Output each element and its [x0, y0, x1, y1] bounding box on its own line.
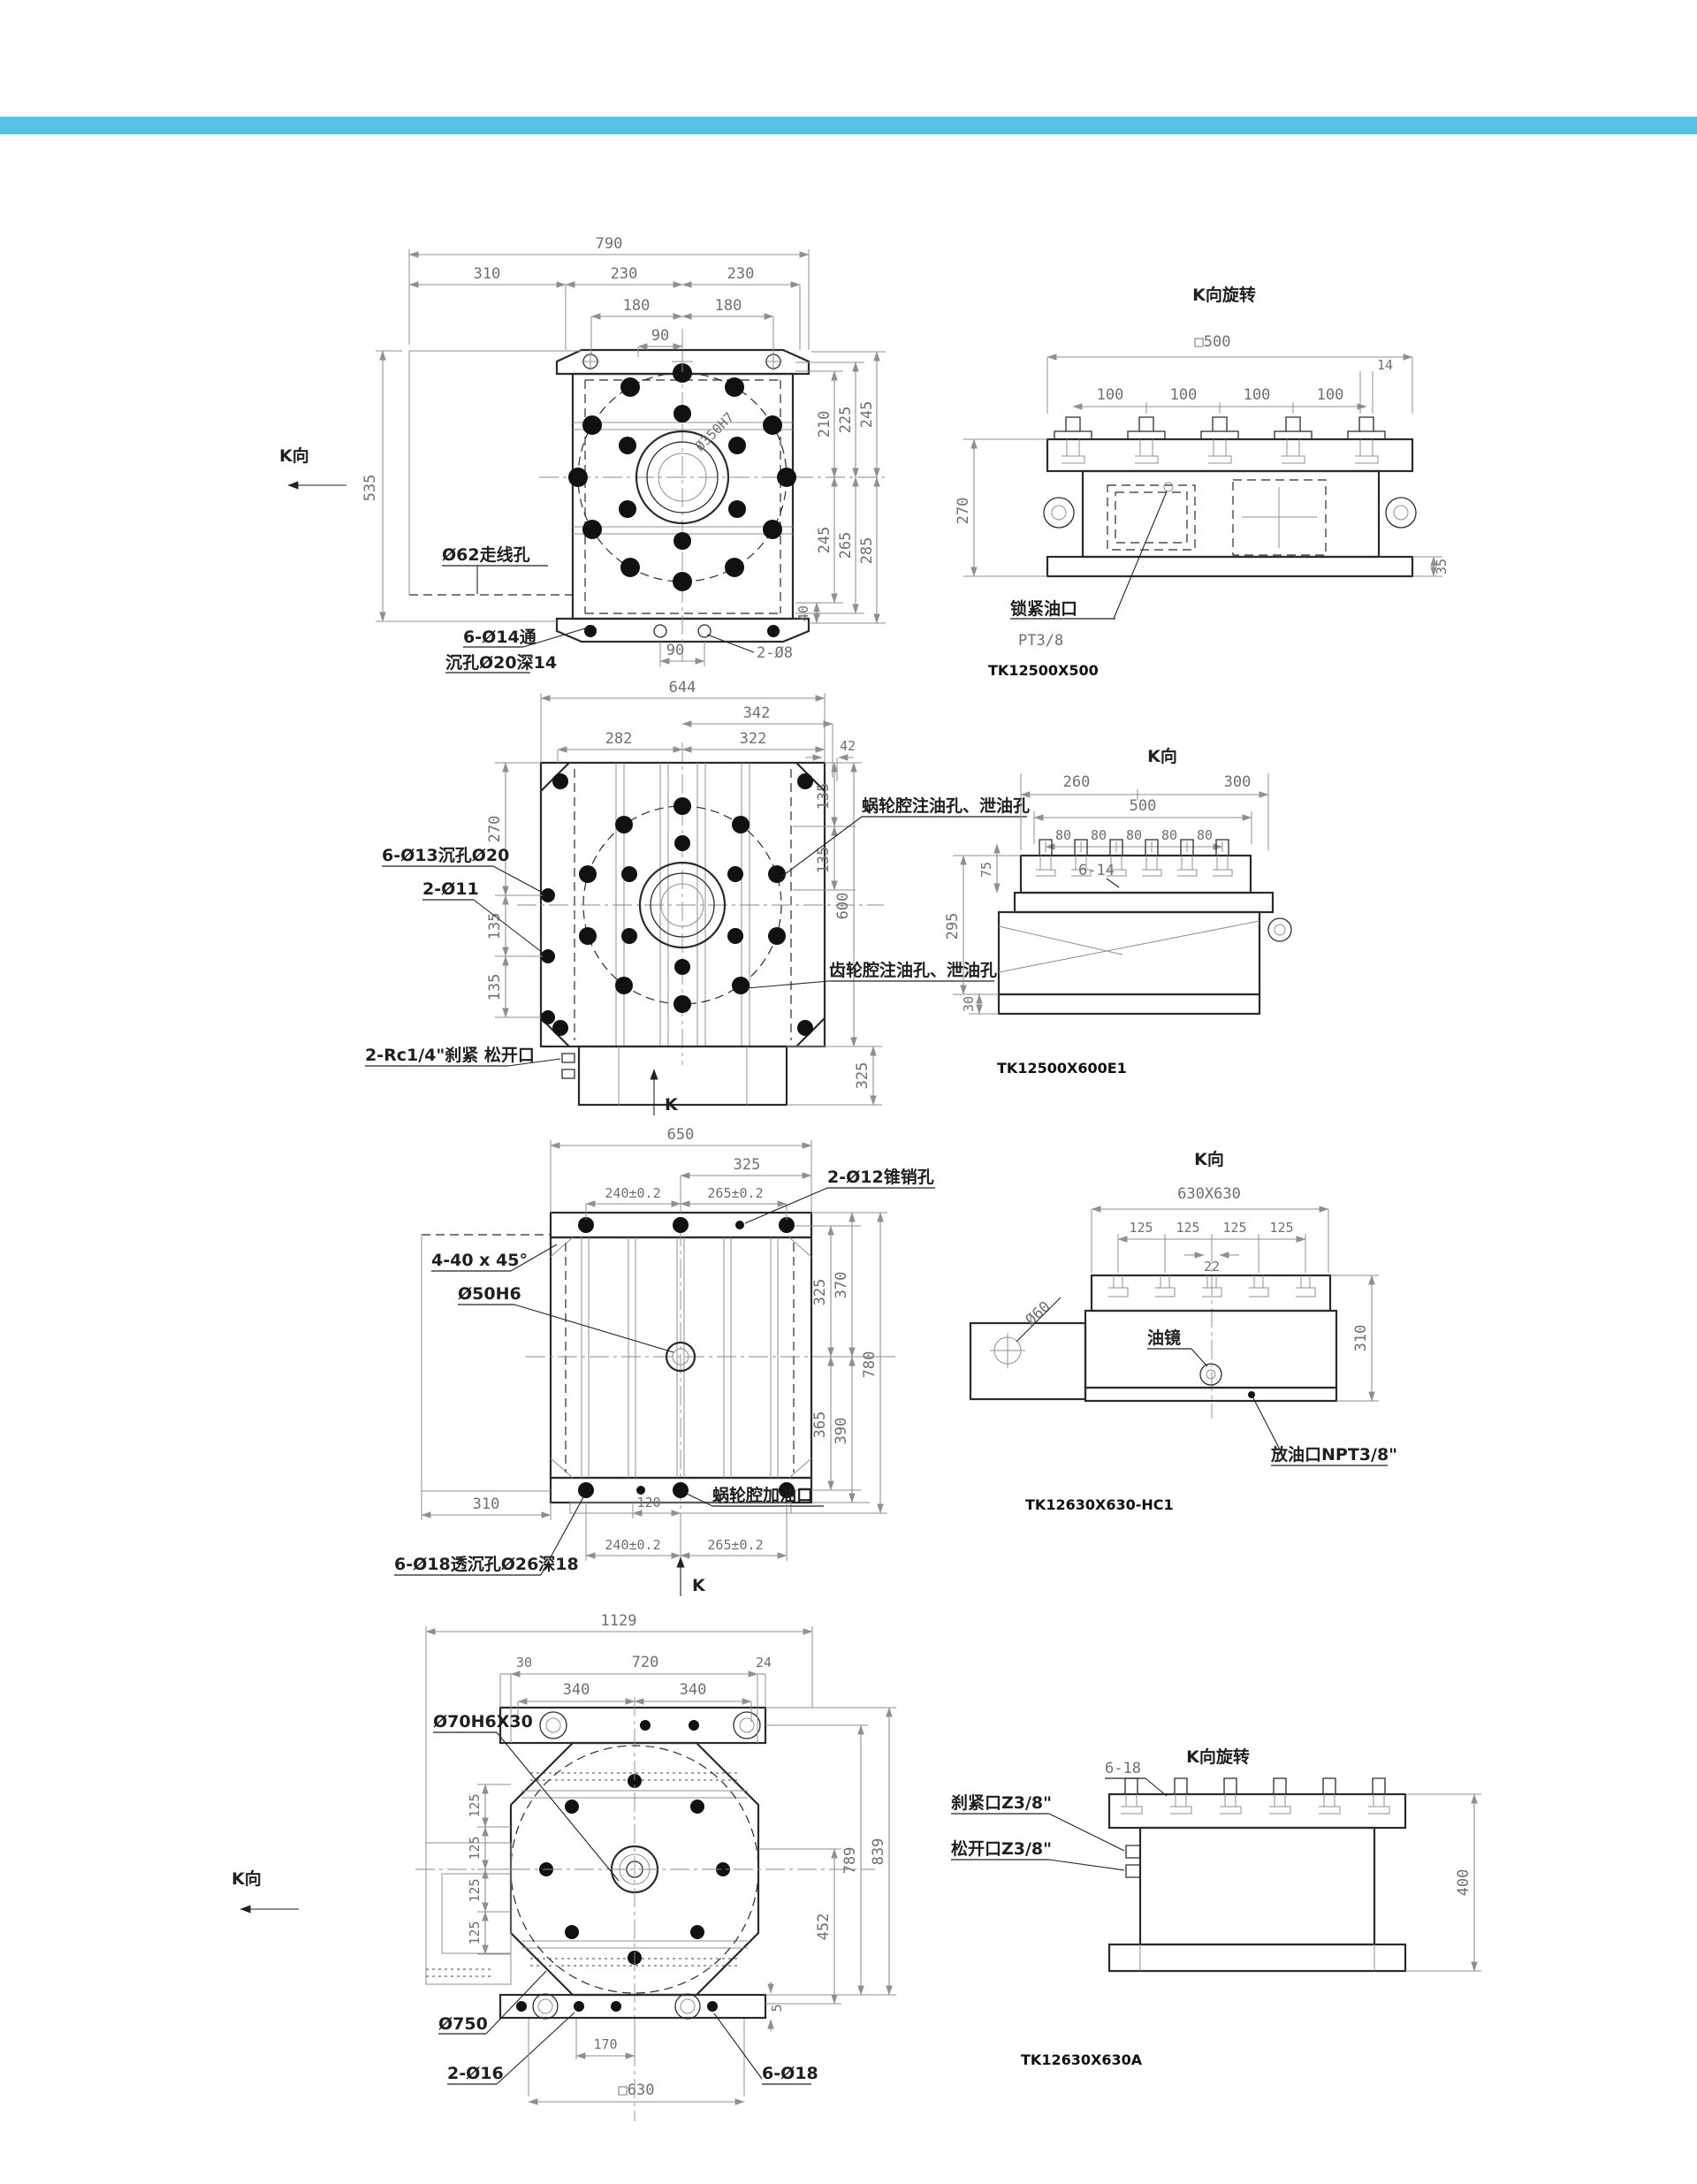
- g2-dim-75: 75: [978, 862, 994, 878]
- g1-label-lock-port: 锁紧油口: [1010, 598, 1077, 619]
- g2-dim-80-1: 80: [1055, 827, 1071, 843]
- g2-dim-135-l2: 135: [486, 974, 504, 1001]
- g3-dim-365: 365: [811, 1412, 829, 1439]
- g1-dim-310: 310: [474, 265, 501, 283]
- g3-label-shaft: Ø60: [1023, 1298, 1054, 1329]
- g1-dim-100-3: 100: [1244, 386, 1271, 404]
- g3-dim-125-3: 125: [1222, 1220, 1246, 1236]
- g1-dim-230l: 230: [611, 265, 638, 283]
- g2-dim-42: 42: [840, 738, 856, 754]
- g4-dim-720: 720: [632, 1654, 659, 1671]
- g4-label-release: 松开口Z3/8": [951, 1838, 1052, 1859]
- g3-label-bore: Ø50H6: [458, 1284, 521, 1304]
- g1-side: K向旋转 □500 100 100 100 100 14 锁紧油口 PT3/8 …: [955, 285, 1450, 679]
- g4-dim-125-2: 125: [467, 1836, 483, 1860]
- g1-part-no: TK12500X500: [988, 662, 1099, 679]
- g2-label-gear-ports: 齿轮腔注油孔、泄油孔: [829, 960, 997, 980]
- g2-dim-80-5: 80: [1197, 827, 1213, 843]
- g3-side-title: K向: [1194, 1149, 1224, 1169]
- g3-dim-125-1: 125: [1129, 1220, 1153, 1236]
- g3-dim-630x630: 630X630: [1177, 1185, 1241, 1203]
- g1-dim-245b: 245: [816, 527, 833, 554]
- g2-dim-260: 260: [1063, 773, 1091, 791]
- g1-dim-180r: 180: [715, 297, 742, 315]
- g3-dim-650: 650: [667, 1126, 695, 1144]
- g3-side: K向 630X630 125 125 125 125 22 Ø60 油镜 310…: [970, 1149, 1397, 1513]
- g1-label-lock-thread: PT3/8: [1018, 632, 1063, 650]
- g3-dim-310r: 310: [1352, 1325, 1370, 1352]
- g3-dim-325r: 325: [811, 1279, 829, 1306]
- g1-side-studs: [1054, 417, 1385, 439]
- g4-label-cbore: 6-Ø18: [762, 2064, 818, 2083]
- g1-dim-35: 35: [1434, 559, 1450, 575]
- g1-dim-790: 790: [596, 235, 623, 253]
- g2-label-worm-ports: 蜗轮腔注油孔、泄油孔: [862, 795, 1030, 816]
- g4-dim-1129: 1129: [601, 1612, 637, 1630]
- g3-part-no: TK12630X630-HC1: [1025, 1496, 1174, 1513]
- g4-label-slots: 6-18: [1105, 1760, 1141, 1777]
- drawing-canvas: Ø350H7 K向 790 310 230 230 180 180 90 535: [0, 0, 1697, 2184]
- g2-dim-322: 322: [740, 730, 767, 748]
- g1-label-cbore2: 沉孔Ø20深14: [445, 652, 557, 673]
- g2-dim-80-4: 80: [1161, 827, 1177, 843]
- g2-dim-282: 282: [605, 730, 633, 748]
- g4-dim-24: 24: [756, 1655, 772, 1670]
- g4-side-title: K向旋转: [1186, 1746, 1250, 1767]
- g1-dim-90bottom: 90: [666, 642, 684, 659]
- g1-side-title: K向旋转: [1192, 285, 1256, 305]
- g1-dim-230r: 230: [727, 265, 755, 283]
- g3-dim-125-2: 125: [1176, 1220, 1199, 1236]
- g2-dim-600: 600: [834, 893, 852, 920]
- g1-label-pins: 2-Ø8: [757, 644, 793, 662]
- g1-dim-210: 210: [816, 411, 833, 438]
- g1-dim-245t: 245: [858, 401, 876, 429]
- g4-dim-sq630: □630: [619, 2081, 655, 2099]
- g2-dim-80-2: 80: [1091, 827, 1107, 843]
- g2-dim-500: 500: [1130, 797, 1157, 815]
- g3-label-sight: 油镜: [1147, 1328, 1181, 1348]
- g4-label-bore: Ø70H6X30: [433, 1712, 533, 1731]
- g2-dim-342: 342: [743, 704, 771, 722]
- g3-dim-125-4: 125: [1269, 1220, 1293, 1236]
- g4-dim-340r: 340: [680, 1681, 707, 1699]
- g1-dim-225: 225: [837, 407, 855, 434]
- g4-dim-789: 789: [841, 1847, 859, 1875]
- g1-dim-265: 265: [837, 532, 855, 559]
- g3-label-oil-fill: 蜗轮腔加油口: [712, 1485, 813, 1505]
- accent-bar: [0, 117, 1697, 134]
- g2-label-rc: 2-Rc1/4"刹紧 松开口: [365, 1045, 535, 1065]
- g1-label-wire-hole: Ø62走线孔: [442, 544, 530, 565]
- g4-dim-125-1: 125: [467, 1793, 483, 1817]
- g2-dim-270: 270: [486, 816, 504, 843]
- g2-dim-80-3: 80: [1126, 827, 1142, 843]
- g3-k-arrow-label: K: [692, 1576, 706, 1595]
- g1-dim-180l: 180: [623, 297, 651, 315]
- g3-dim-265b: 265±0.2: [707, 1537, 763, 1553]
- g2-dim-325: 325: [854, 1062, 871, 1090]
- g2-part-no: TK12500X600E1: [997, 1060, 1127, 1077]
- g4-k-view-label: K向: [232, 1868, 262, 1889]
- g3-label-taper-pins: 2-Ø12锥销孔: [827, 1167, 934, 1187]
- g2-label-pins: 2-Ø11: [422, 879, 479, 899]
- g1-dim-100-1: 100: [1097, 386, 1124, 404]
- g4-dim-170: 170: [593, 2036, 617, 2052]
- g2-dim-300: 300: [1224, 773, 1252, 791]
- g2-dim-295: 295: [944, 913, 962, 940]
- g2-dim-30: 30: [961, 996, 977, 1012]
- drawing-sheet: Ø350H7 K向 790 310 230 230 180 180 90 535: [0, 0, 1697, 2184]
- g4-side: K向旋转 6-18 刹紧口Z3/8" 松开口Z3/8" 400 TK12630X…: [951, 1746, 1481, 2068]
- g2-dim-135-r1: 135: [815, 783, 833, 810]
- g4-dim-125-4: 125: [467, 1921, 483, 1944]
- g3-dim-265t: 265±0.2: [707, 1185, 763, 1201]
- g3-dim-240b: 240±0.2: [605, 1537, 660, 1553]
- g3-label-chamfer: 4-40 x 45°: [431, 1251, 528, 1270]
- g4-dim-452: 452: [815, 1914, 833, 1941]
- g2-label-slots: 6-14: [1078, 862, 1115, 879]
- g1-dim-270: 270: [955, 498, 972, 525]
- g4-dim-5: 5: [769, 2004, 785, 2012]
- g1-dim-40: 40: [795, 605, 811, 621]
- g2-dim-135-r2: 135: [815, 847, 833, 874]
- g3-dim-310l: 310: [473, 1495, 500, 1513]
- g3-label-drain: 放油口NPT3/8": [1270, 1444, 1397, 1465]
- g4-dim-30: 30: [516, 1655, 532, 1670]
- g2-side-title: K向: [1147, 746, 1177, 766]
- g4-plan: K向 1129 30 720 24 340 340 Ø70H6X30 125 1…: [232, 1612, 896, 2121]
- g1-dim-14: 14: [1377, 357, 1393, 373]
- g3-dim-120: 120: [636, 1495, 660, 1511]
- g2-dim-135-l1: 135: [486, 913, 504, 940]
- g4-dim-400: 400: [1455, 1869, 1473, 1897]
- g1-dim-285: 285: [858, 537, 876, 565]
- g1-dim-100-4: 100: [1317, 386, 1344, 404]
- g2-label-cbore: 6-Ø13沉孔Ø20: [382, 846, 509, 865]
- g1-plan: Ø350H7 K向 790 310 230 230 180 180 90 535: [279, 235, 886, 673]
- g4-dim-340l: 340: [563, 1681, 590, 1699]
- g2-dim-644: 644: [669, 679, 696, 696]
- g1-label-cbore1: 6-Ø14通: [463, 628, 537, 647]
- g4-label-clamp: 刹紧口Z3/8": [951, 1793, 1052, 1813]
- g3-dim-370: 370: [833, 1272, 850, 1299]
- g4-label-circle: Ø750: [438, 2014, 488, 2034]
- g1-dim-535: 535: [361, 475, 379, 502]
- g3-plan: 650 325 240±0.2 265±0.2 2-Ø12锥销孔 4-40 x …: [394, 1126, 935, 1596]
- g1-dim-90top: 90: [651, 327, 669, 345]
- g4-dim-839: 839: [870, 1838, 887, 1866]
- g4-dim-125-3: 125: [467, 1878, 483, 1902]
- g3-dim-325: 325: [734, 1156, 761, 1174]
- g3-dim-780: 780: [861, 1351, 879, 1379]
- g2-k-arrow-label: K: [665, 1095, 679, 1115]
- g4-label-pins: 2-Ø16: [447, 2064, 504, 2083]
- g4-part-no: TK12630X630A: [1021, 2051, 1143, 2068]
- g3-dim-390: 390: [833, 1418, 850, 1445]
- g1-k-view-label: K向: [279, 445, 309, 466]
- g3-dim-240t: 240±0.2: [605, 1185, 660, 1201]
- g1-dim-100-2: 100: [1170, 386, 1198, 404]
- g1-dim-sq500: □500: [1195, 333, 1231, 351]
- g2-plan: 644 342 282 322 42 270 135 135 6-Ø13沉孔Ø2…: [365, 679, 1030, 1115]
